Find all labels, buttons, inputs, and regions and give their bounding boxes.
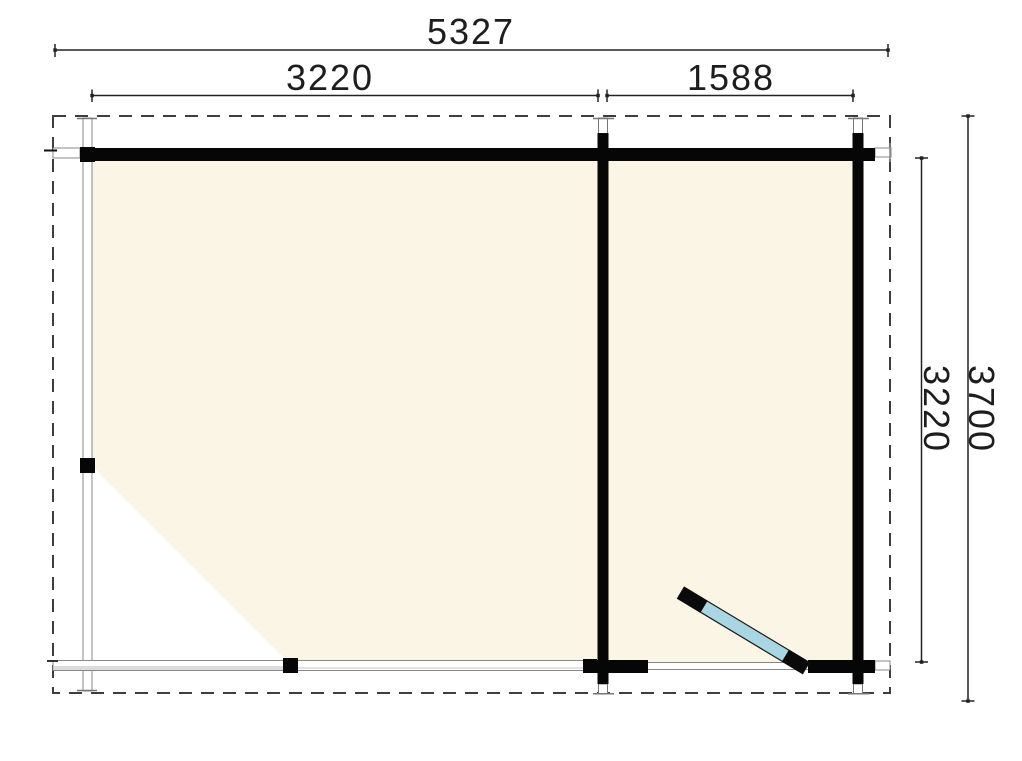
partition-wall-bottom-stub [599,684,608,694]
veranda-front-beam [297,661,584,671]
floor-plan-canvas: 5327 3220 1588 3220 3700 [0,0,1022,761]
right-wall [853,133,864,684]
dimension-label-inner-depth: 3220 [917,324,955,494]
right-wall-top-stub [854,118,863,134]
dimension-label-right-section-width: 1588 [646,59,816,97]
back-wall [80,148,875,161]
post-mid-left [80,458,95,473]
dimension-label-total-width: 5327 [386,13,556,51]
floor-area [92,152,864,664]
top-right-rail [875,148,891,157]
post-top-left [80,147,95,162]
partition-wall [598,133,609,684]
partition-wall-top-stub [599,118,608,134]
front-wall-right-segment [808,660,875,673]
post-front-diagonal [283,658,298,673]
veranda-left-rail [83,118,92,691]
right-wall-bottom-stub [854,684,863,694]
dimension-label-total-depth: 3700 [962,324,1000,494]
door-threshold [648,663,808,669]
top-left-rail [53,148,80,158]
deck-front-fascia-band [54,666,283,670]
floor-plan-drawing [0,0,1022,761]
bottom-right-rail [875,661,890,670]
dimension-label-left-section-width: 3220 [245,59,415,97]
post-front-mid [583,659,597,673]
